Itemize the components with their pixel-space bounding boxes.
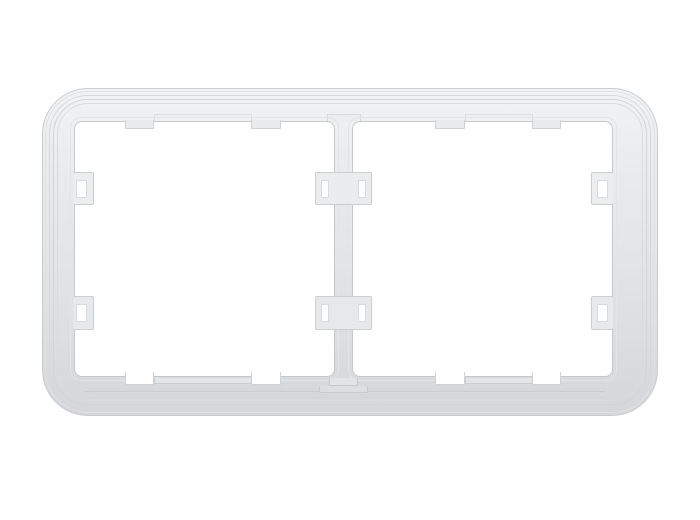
clip-window-left-upper [76, 180, 87, 198]
bottom-notch-right-1 [435, 372, 465, 385]
bottom-ledge-line-3 [90, 397, 330, 398]
bottom-notch-right-2 [532, 372, 561, 385]
divider-clip-lower-window-right [358, 304, 366, 322]
bottom-ledge-line-2 [360, 391, 605, 392]
clip-window-right-upper [597, 180, 608, 198]
divider-clip-upper-window-left [321, 180, 329, 198]
top-tab-right-2 [532, 120, 561, 129]
bottom-notch-left-2 [251, 372, 281, 385]
top-tab-left-1 [125, 120, 154, 129]
bottom-ledge-line-1 [84, 391, 327, 392]
opening-right [352, 121, 613, 377]
bottom-ledge-line-4 [363, 397, 605, 398]
top-tab-right-1 [435, 120, 465, 129]
bottom-step-left [154, 378, 252, 384]
divider-clip-upper-window-right [358, 180, 366, 198]
divider-clip-lower-window-left [321, 304, 329, 322]
bottom-notch-left-1 [125, 372, 154, 385]
clip-window-left-lower [76, 304, 87, 322]
product-photo-two-gang-switch-frame [0, 0, 700, 520]
clip-window-right-lower [597, 304, 608, 322]
bottom-step-right [465, 378, 533, 384]
opening-left [74, 121, 335, 377]
divider-foot-step-1 [329, 378, 358, 386]
divider-foot-step-2 [319, 386, 368, 393]
top-tab-left-2 [251, 120, 281, 129]
